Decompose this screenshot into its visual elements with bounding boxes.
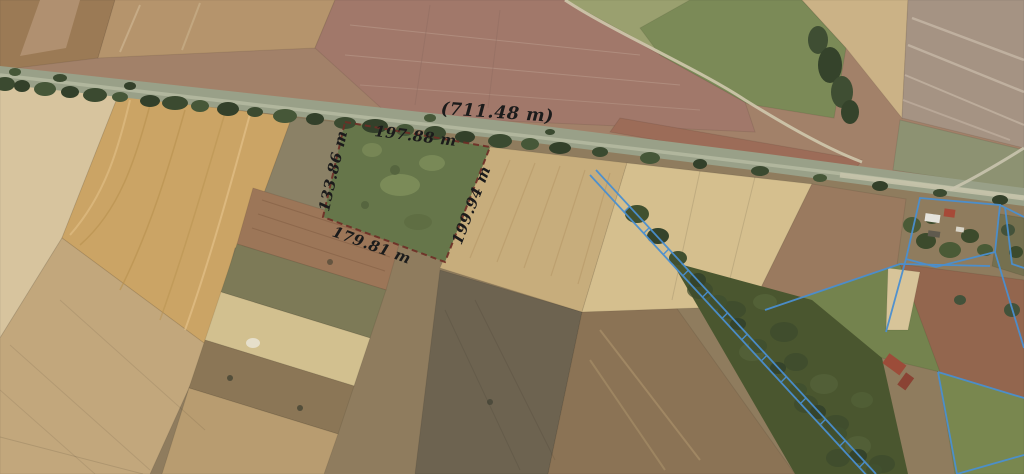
farm-building-red-roof (943, 208, 955, 217)
aerial-map-canvas: (711.48 m) 197.88 m 133.86 m 199.94 m 17… (0, 0, 1024, 474)
aerial-map[interactable]: (711.48 m) 197.88 m 133.86 m 199.94 m 17… (0, 0, 1024, 474)
